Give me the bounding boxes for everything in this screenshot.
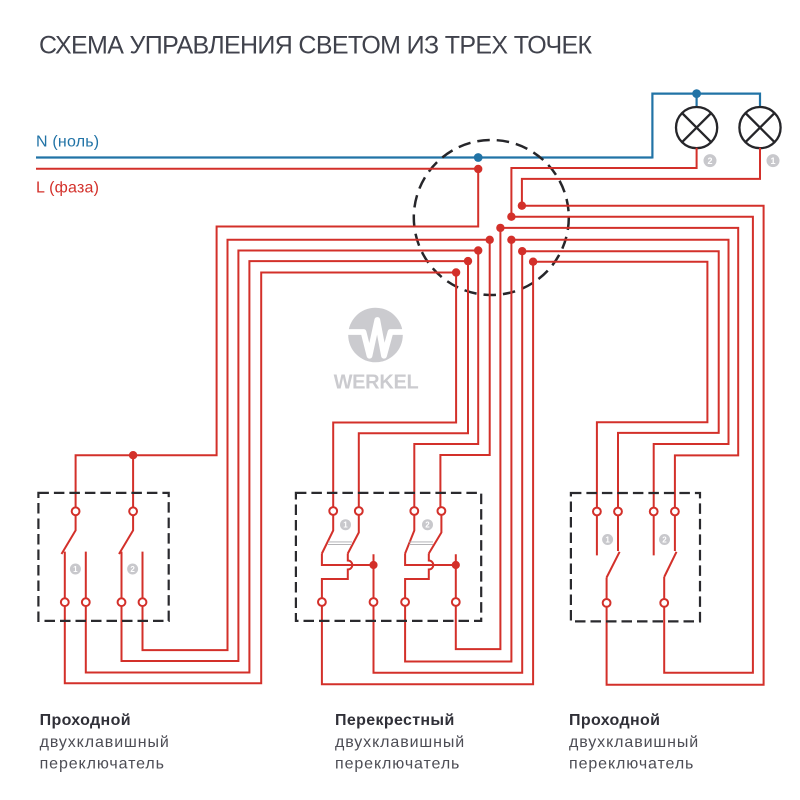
svg-text:1: 1 [770,156,775,166]
svg-text:Проходной: Проходной [569,712,660,729]
svg-text:WERKEL: WERKEL [334,372,419,394]
svg-text:Перекрестный: Перекрестный [335,712,455,729]
svg-text:двухклавишный: двухклавишный [40,734,170,751]
svg-text:N (ноль): N (ноль) [36,134,99,151]
svg-text:переключатель: переключатель [335,756,460,773]
svg-text:переключатель: переключатель [569,756,694,773]
svg-text:переключатель: переключатель [40,756,165,773]
svg-text:2: 2 [662,535,667,544]
svg-text:1: 1 [605,535,610,544]
svg-text:1: 1 [343,521,348,530]
svg-text:1: 1 [73,565,78,574]
svg-text:2: 2 [707,156,712,166]
svg-text:2: 2 [130,565,135,574]
svg-text:L (фаза): L (фаза) [36,180,99,197]
svg-text:двухклавишный: двухклавишный [335,734,465,751]
svg-text:2: 2 [425,521,430,530]
svg-text:СХЕМА УПРАВЛЕНИЯ СВЕТОМ ИЗ ТРЕ: СХЕМА УПРАВЛЕНИЯ СВЕТОМ ИЗ ТРЕХ ТОЧЕК [39,32,592,60]
svg-text:двухклавишный: двухклавишный [569,734,699,751]
svg-text:Проходной: Проходной [40,712,131,729]
